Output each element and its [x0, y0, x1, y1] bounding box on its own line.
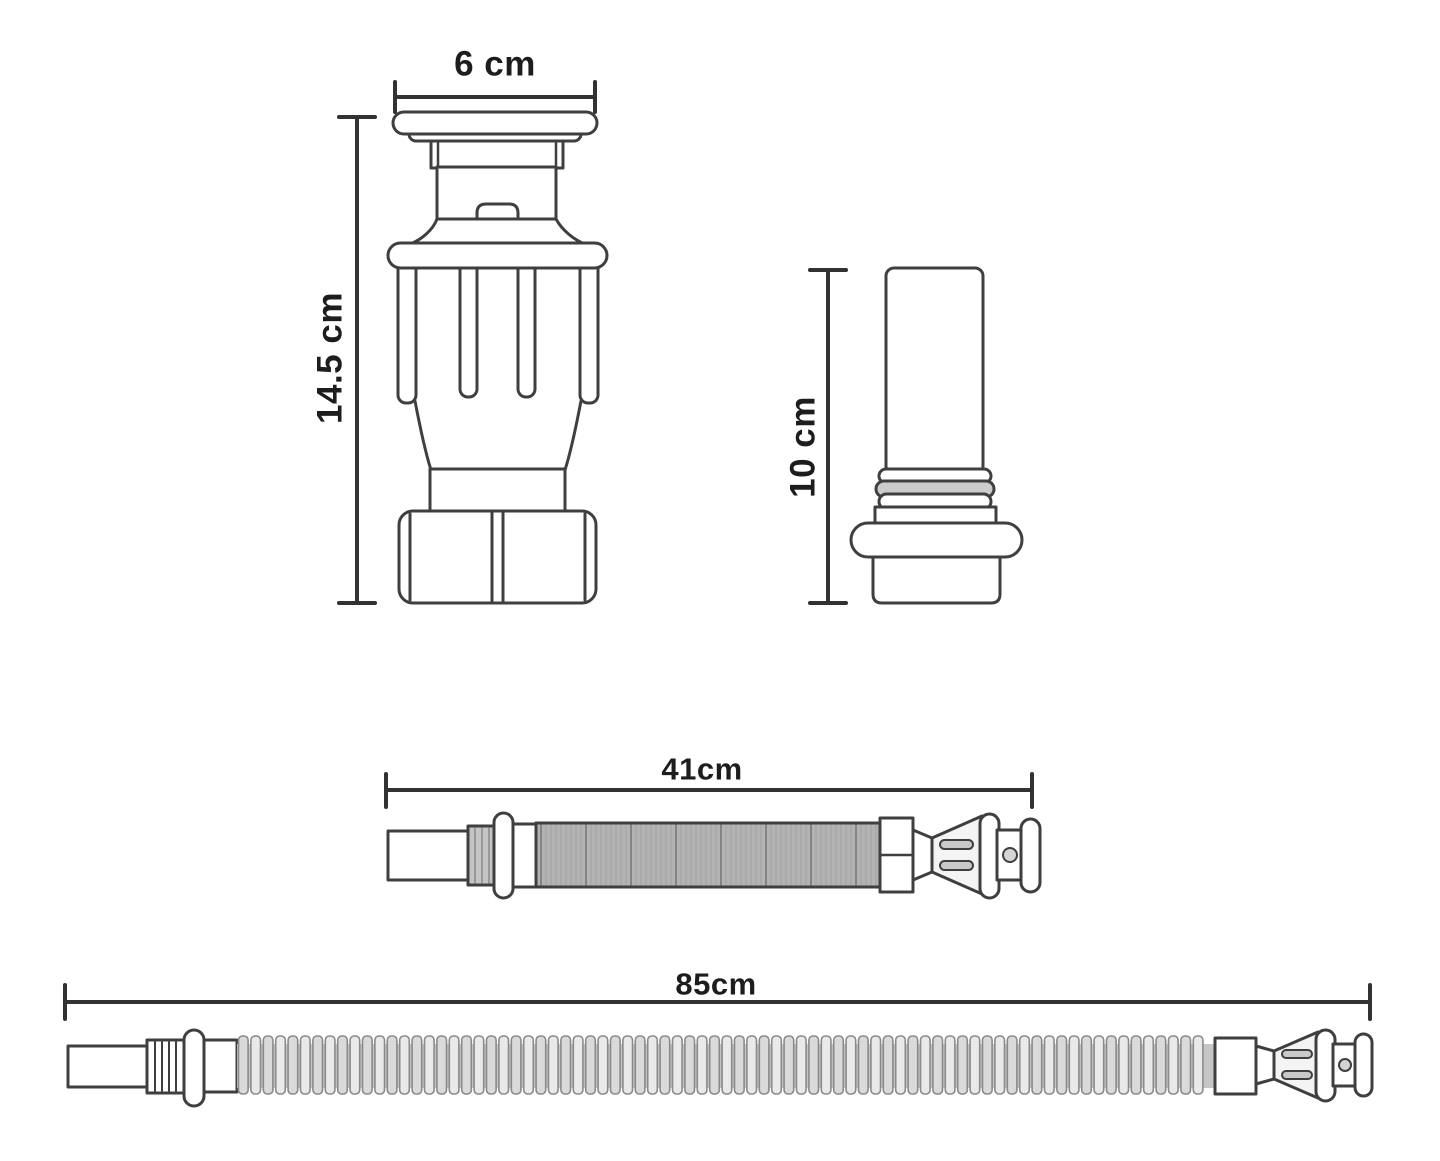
drain-width-dimension — [395, 82, 595, 112]
short-hose-neck — [913, 830, 932, 880]
short-hose-figure — [388, 813, 1040, 898]
short-hose-inlet-pipe — [388, 831, 470, 880]
drain-height-label: 14.5 cm — [313, 292, 348, 424]
long-hose-cone-rib — [1282, 1071, 1312, 1079]
short-hose-outlet-detail — [1003, 848, 1017, 862]
long-hose-outlet-detail — [1339, 1059, 1351, 1071]
long-hose-right-collar — [1215, 1038, 1256, 1094]
drain-rib — [460, 256, 477, 397]
short-hose-cone-nut — [932, 816, 982, 894]
short-hose-cone-rib — [940, 861, 973, 870]
drain-cap-top — [393, 112, 597, 134]
drain-coupling-nut — [399, 511, 596, 603]
drain-skirt — [410, 219, 585, 244]
long-hose-length-label: 85cm — [675, 969, 756, 1000]
short-hose-length-label: 41cm — [661, 754, 742, 785]
drain-flange-band — [388, 243, 607, 268]
long-hose-cone-rib — [1282, 1050, 1312, 1058]
long-hose-inlet-pipe — [68, 1046, 149, 1087]
extension-height-label: 10 cm — [786, 396, 821, 498]
extension-tube-body — [886, 268, 983, 474]
drain-assembly-figure — [388, 112, 607, 603]
diagram-canvas: 6 cm 14.5 cm 10 cm 41cm 85cm — [0, 0, 1440, 1161]
long-hose-flange — [184, 1030, 204, 1106]
long-hose-neck — [1256, 1046, 1274, 1084]
drain-lower-neck — [430, 469, 565, 514]
long-hose-collar — [203, 1040, 237, 1092]
short-hose-end-flange — [1021, 819, 1040, 892]
long-hose-figure — [68, 1030, 1372, 1106]
short-hose-corrugation — [536, 823, 880, 887]
drain-rib — [580, 256, 598, 403]
drain-tab — [477, 204, 518, 219]
drain-rib — [518, 256, 535, 397]
drain-width-label: 6 cm — [454, 47, 536, 82]
extension-flange-band — [851, 523, 1022, 557]
short-hose-flange — [494, 813, 513, 898]
long-hose-end-flange — [1355, 1034, 1372, 1096]
short-hose-cone-rib — [940, 840, 973, 849]
long-hose-cone-nut — [1274, 1032, 1318, 1098]
long-hose-thread — [147, 1040, 186, 1093]
drain-rib — [398, 256, 416, 403]
extension-tube-figure — [851, 268, 1022, 603]
